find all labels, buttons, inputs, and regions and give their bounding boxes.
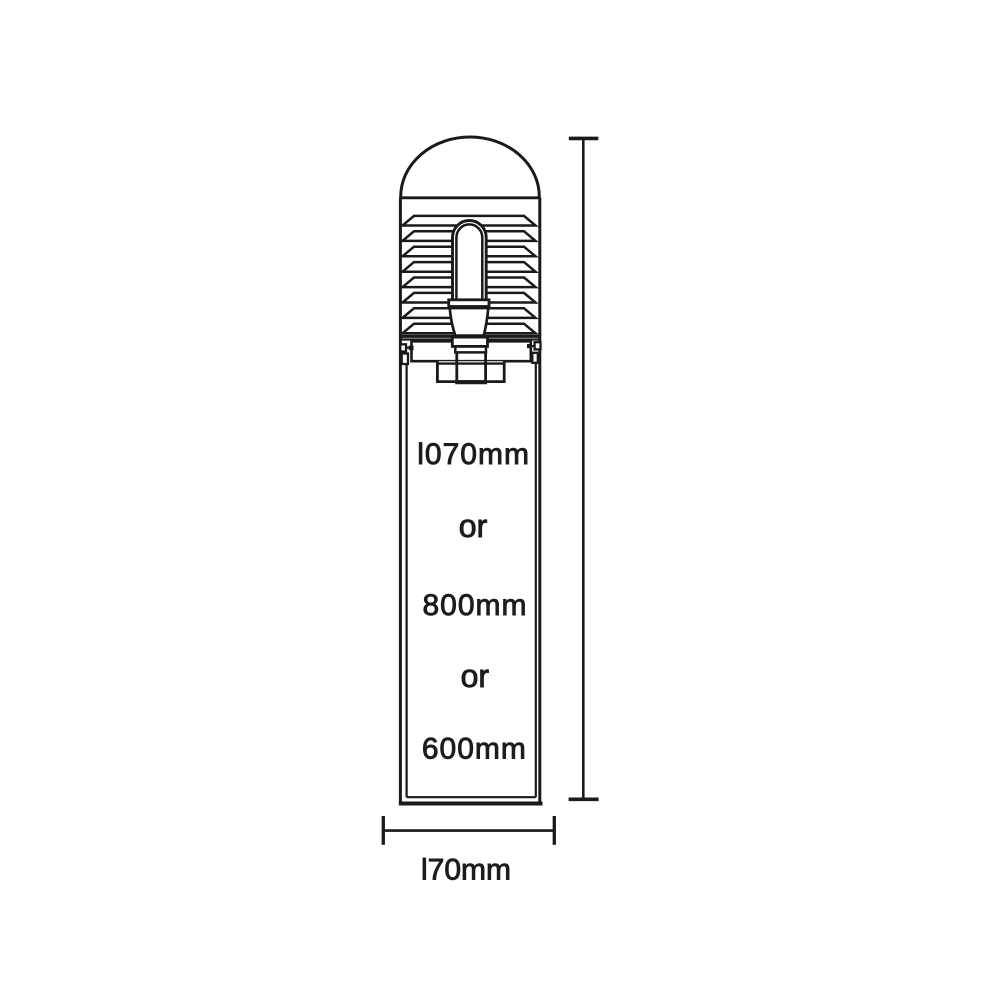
svg-text:600mm: 600mm — [422, 733, 527, 766]
svg-text:or: or — [461, 658, 490, 694]
svg-text:l070mm: l070mm — [417, 438, 530, 471]
svg-text:or: or — [459, 508, 488, 544]
svg-text:l70mm: l70mm — [421, 854, 511, 887]
svg-text:800mm: 800mm — [422, 589, 527, 622]
